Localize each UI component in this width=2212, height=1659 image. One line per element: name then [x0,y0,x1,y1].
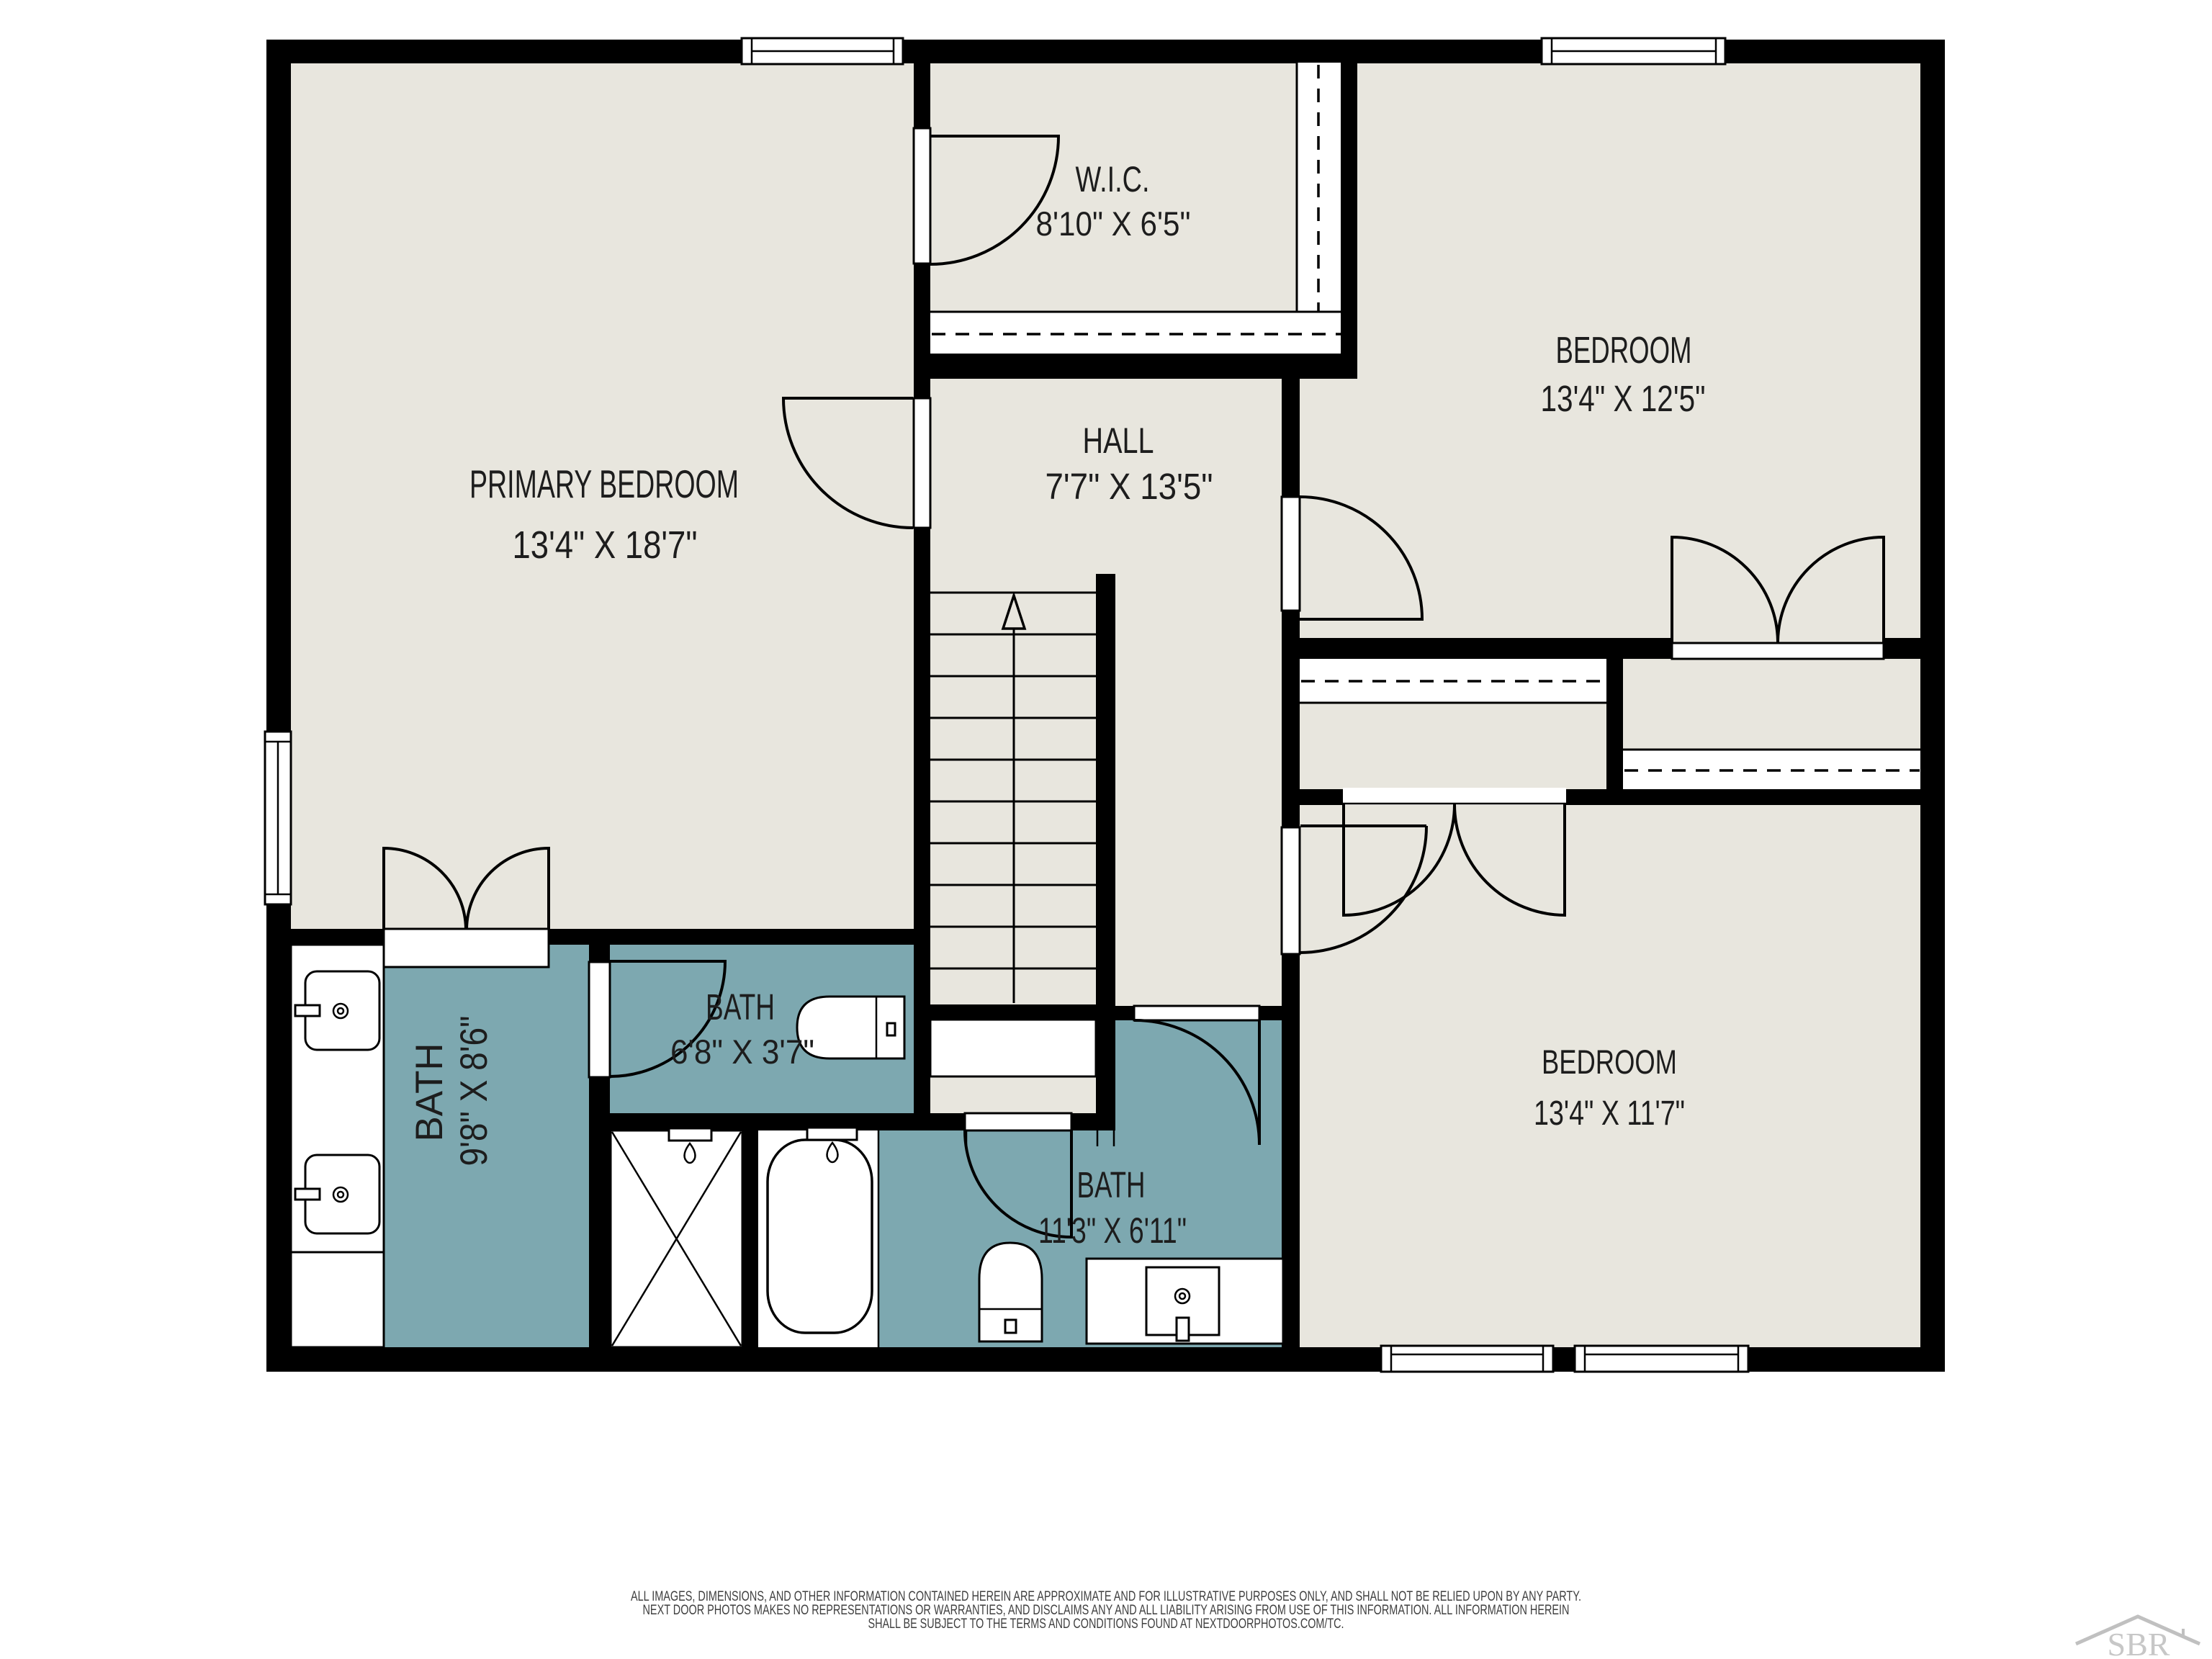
svg-text:7'7" X 13'5": 7'7" X 13'5" [1046,466,1213,507]
svg-text:6'8" X 3'7": 6'8" X 3'7" [670,1033,814,1071]
svg-text:BATH: BATH [408,1043,451,1142]
svg-text:9'8" X 8'6": 9'8" X 8'6" [453,1016,495,1166]
svg-text:BATH: BATH [706,986,775,1028]
svg-text:11'3" X 6'11": 11'3" X 6'11" [1038,1210,1187,1251]
svg-text:BATH: BATH [1077,1164,1146,1205]
svg-text:8'10" X 6'5": 8'10" X 6'5" [1036,204,1191,243]
svg-text:13'4" X 18'7": 13'4" X 18'7" [513,523,698,567]
svg-text:BEDROOM: BEDROOM [1542,1043,1677,1081]
svg-text:BEDROOM: BEDROOM [1556,330,1692,372]
svg-text:13'4" X 12'5": 13'4" X 12'5" [1541,378,1706,419]
svg-text:SHALL BE SUBJECT TO THE TERMS: SHALL BE SUBJECT TO THE TERMS AND CONDIT… [868,1616,1344,1632]
svg-text:PRIMARY BEDROOM: PRIMARY BEDROOM [469,462,739,506]
svg-text:W.I.C.: W.I.C. [1076,159,1150,199]
svg-text:13'4" X 11'7": 13'4" X 11'7" [1534,1094,1685,1133]
svg-text:SBR: SBR [2108,1627,2170,1659]
svg-text:HALL: HALL [1083,421,1154,461]
